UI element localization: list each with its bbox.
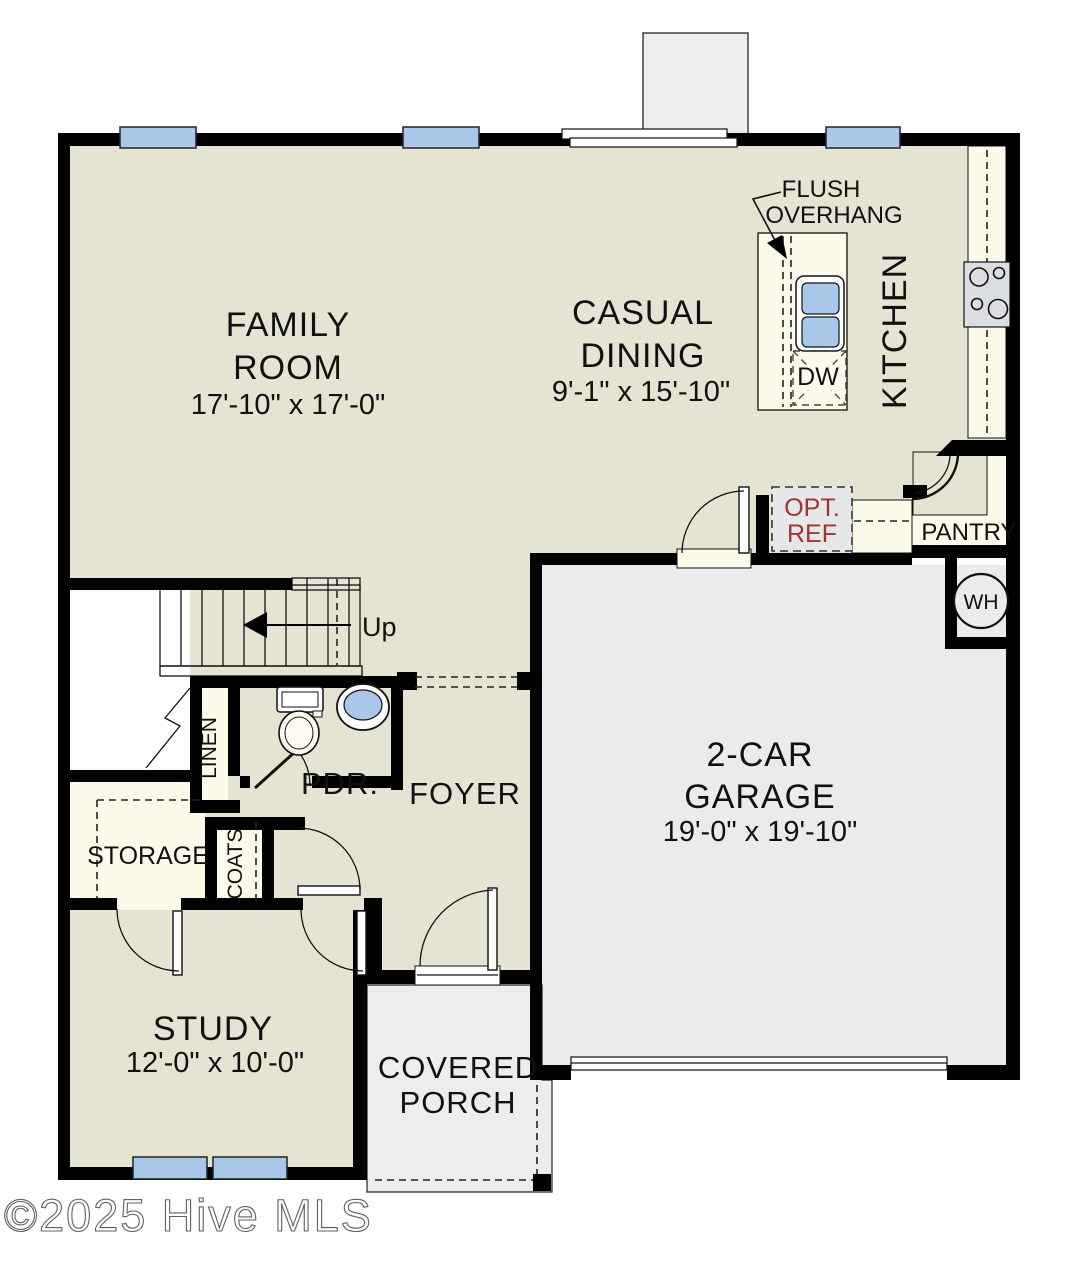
wall-pantry-bottom bbox=[912, 545, 1006, 558]
family-room-dims: 17'-10" x 17'-0" bbox=[191, 389, 386, 421]
covered-porch-label-1: COVERED bbox=[378, 1050, 538, 1085]
wall-water-heater-bottom bbox=[945, 637, 1006, 649]
wall-coats-top bbox=[217, 817, 305, 830]
flush-overhang-label-1: FLUSH bbox=[782, 176, 861, 203]
kitchen-label: KITCHEN bbox=[876, 253, 914, 409]
wall-stub-cased-right bbox=[517, 672, 530, 690]
dishwasher-label: DW bbox=[797, 363, 839, 391]
coats-label: COATS bbox=[224, 829, 247, 900]
pantry-door-swing-area bbox=[913, 452, 987, 515]
study-label: STUDY bbox=[153, 1010, 273, 1048]
study-dims: 12'-0" x 10'-0" bbox=[126, 1047, 304, 1079]
wall-coats-right bbox=[262, 817, 274, 910]
wall-study-top-a bbox=[58, 898, 117, 910]
wall-powder-bottom-left bbox=[240, 776, 250, 788]
pantry-label: PANTRY bbox=[921, 519, 1016, 546]
porch-post bbox=[533, 1174, 551, 1191]
wall-garage-top-a bbox=[530, 553, 680, 565]
garage-label-1: 2-CAR bbox=[706, 736, 813, 774]
wall-garage-bottom-right bbox=[947, 1065, 1006, 1080]
wall-exterior-left bbox=[58, 133, 70, 1180]
chimney-bumpout bbox=[643, 33, 748, 135]
linen-label: LINEN bbox=[198, 717, 221, 779]
sink-basin-2 bbox=[802, 317, 839, 347]
entry-floor bbox=[382, 910, 530, 972]
wall-garage-left bbox=[530, 553, 542, 1080]
toilet-handle bbox=[313, 711, 322, 717]
opt-ref-label-2: REF bbox=[787, 520, 837, 548]
covered-porch-label-2: PORCH bbox=[400, 1085, 517, 1120]
mls-watermark: ©2025 Hive MLS bbox=[4, 1190, 373, 1241]
casual-dining-label-2: DINING bbox=[581, 337, 706, 375]
family-room-label-1: FAMILY bbox=[226, 306, 350, 344]
wall-under-stair-bottom bbox=[58, 770, 190, 782]
wall-linen-bottom bbox=[190, 800, 240, 813]
casual-dining-label-1: CASUAL bbox=[572, 294, 714, 332]
window-study-1 bbox=[133, 1157, 207, 1179]
wall-front-left bbox=[367, 970, 415, 984]
powder-room-label: PDR. bbox=[301, 766, 379, 801]
wall-front-right bbox=[497, 970, 530, 984]
garage-dims: 19'-0" x 19'-10" bbox=[663, 816, 858, 848]
powder-sink-basin bbox=[344, 690, 382, 720]
floor-plan-page: FAMILY ROOM 17'-10" x 17'-0" CASUAL DINI… bbox=[0, 0, 1086, 1272]
wall-powder-right bbox=[391, 676, 403, 790]
casual-dining-dims: 9'-1" x 15'-10" bbox=[552, 376, 730, 408]
cabinet bbox=[852, 500, 912, 553]
front-door-leaf bbox=[488, 888, 497, 970]
wall-linen-right bbox=[228, 688, 240, 776]
study-door-leaf bbox=[357, 911, 366, 975]
under-stair-area bbox=[70, 590, 190, 770]
stairs-up-label: Up bbox=[362, 612, 397, 642]
wall-family-room-bottom bbox=[58, 578, 292, 590]
floor-plan-drawing: FAMILY ROOM 17'-10" x 17'-0" CASUAL DINI… bbox=[0, 0, 1086, 1272]
toilet-tank bbox=[277, 687, 323, 712]
sink-basin-1 bbox=[802, 283, 839, 314]
window-study-2 bbox=[213, 1157, 287, 1179]
closet-door-leaf bbox=[298, 886, 360, 895]
window-kitchen bbox=[826, 127, 900, 148]
wall-door-jamb-stub bbox=[756, 495, 769, 553]
window-family-1 bbox=[120, 127, 196, 148]
flush-overhang-label-2: OVERHANG bbox=[765, 202, 902, 229]
wall-garage-top-b bbox=[747, 553, 912, 565]
wall-study-top-c bbox=[364, 898, 382, 910]
sliding-door-panel-2 bbox=[570, 138, 737, 147]
water-heater-label: WH bbox=[964, 591, 999, 614]
foyer-label: FOYER bbox=[409, 776, 521, 811]
garage-entry-door-leaf bbox=[739, 487, 749, 553]
storage-label: STORAGE bbox=[87, 842, 209, 870]
opt-ref-label-1: OPT. bbox=[784, 494, 840, 522]
window-family-2 bbox=[403, 127, 479, 148]
family-room-label-2: ROOM bbox=[233, 349, 343, 387]
storage-door-leaf bbox=[173, 911, 182, 975]
garage-label-2: GARAGE bbox=[684, 778, 835, 816]
